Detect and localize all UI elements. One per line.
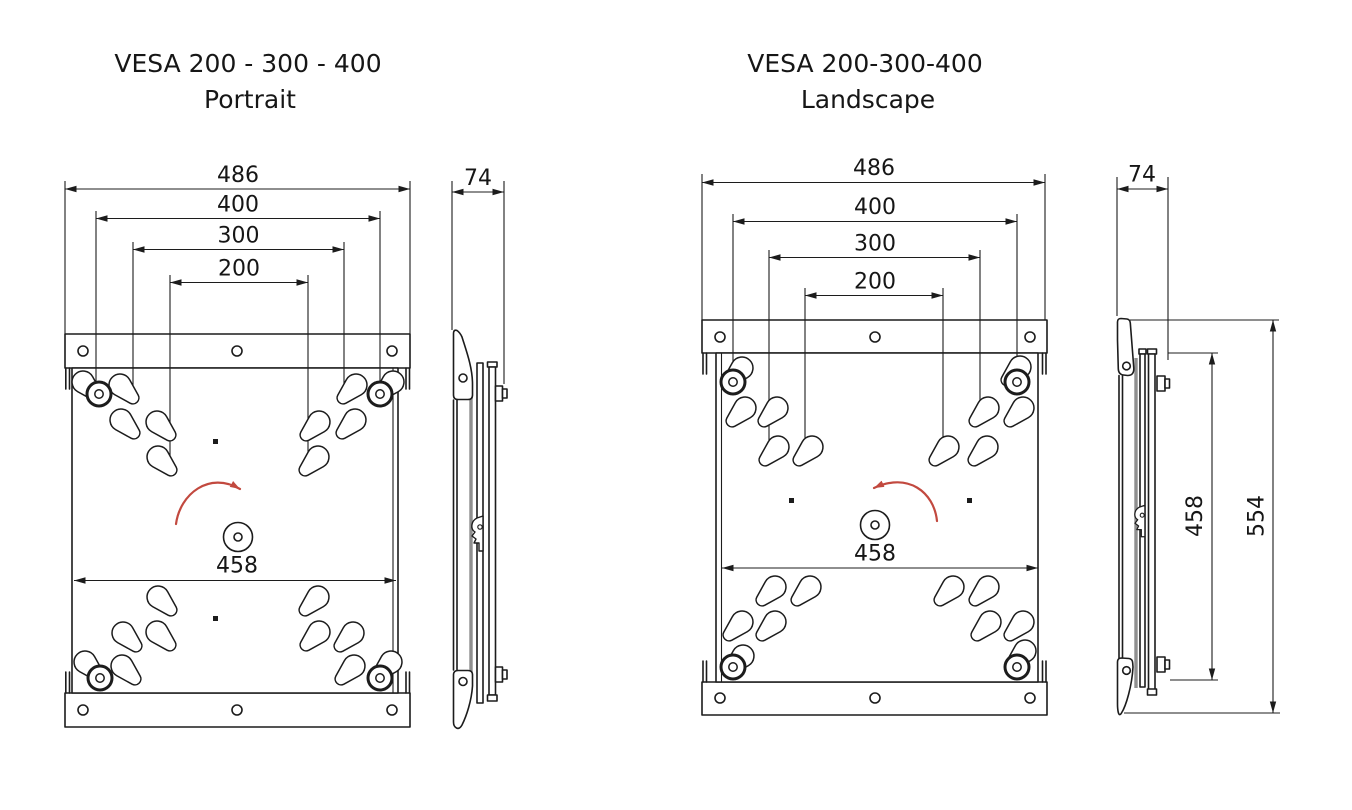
landscape-front-view: 486 400 300 200 458 (702, 156, 1047, 715)
hook-plate-edges (1119, 376, 1123, 659)
portrait-side-view: 74 (452, 166, 507, 728)
stud (1157, 657, 1165, 672)
index-mark (213, 616, 218, 621)
corner-screw (1005, 370, 1029, 394)
technical-drawing-page: VESA 200 - 300 - 400 Portrait (0, 0, 1352, 810)
corner-screw (368, 382, 392, 406)
corner-screw (87, 382, 111, 406)
landscape-dim-458-height: 458 (1183, 495, 1208, 537)
bottom-rail (702, 682, 1047, 715)
top-hook (1118, 319, 1134, 376)
portrait-dim-74: 74 (464, 166, 492, 191)
bottom-hook (454, 671, 473, 729)
index-mark (967, 498, 972, 503)
portrait-dim-300: 300 (218, 224, 260, 249)
portrait-figure: VESA 200 - 300 - 400 Portrait (65, 49, 507, 728)
side-plate (1149, 354, 1156, 691)
portrait-dim-486: 486 (217, 163, 259, 188)
hook-plate-edges (454, 400, 458, 670)
landscape-dim-458-width: 458 (854, 542, 896, 567)
landscape-dim-486: 486 (853, 156, 895, 181)
landscape-dim-74: 74 (1128, 163, 1156, 188)
landscape-title-line1: VESA 200-300-400 (747, 49, 982, 78)
portrait-dim-400: 400 (217, 193, 259, 218)
stud (496, 386, 503, 401)
corner-screw (1005, 655, 1029, 679)
top-hook (454, 330, 473, 399)
side-plate (489, 367, 496, 695)
landscape-dim-200: 200 (854, 270, 896, 295)
landscape-dim-400: 400 (854, 195, 896, 220)
index-mark (789, 498, 794, 503)
vesa-bracket-drawing: VESA 200 - 300 - 400 Portrait (0, 0, 1352, 810)
plate-cap (488, 695, 498, 701)
stud-tip (503, 670, 508, 679)
corner-screw (88, 666, 112, 690)
portrait-dim-200: 200 (218, 257, 260, 282)
stud (1157, 376, 1165, 391)
corner-screw (721, 655, 745, 679)
landscape-figure: VESA 200-300-400 Landscape (702, 49, 1280, 715)
stud-tip (1165, 379, 1170, 388)
stud (496, 667, 503, 682)
corner-screw (721, 370, 745, 394)
landscape-dim-300: 300 (854, 232, 896, 257)
top-rail (65, 334, 410, 368)
height-dimensions: 458 554 (1124, 320, 1280, 713)
stud-tip (1165, 660, 1170, 669)
landscape-title-line2: Landscape (801, 85, 935, 114)
landscape-dim-554: 554 (1245, 495, 1270, 537)
corner-screw (368, 666, 392, 690)
portrait-front-view: 486 400 300 200 458 (65, 163, 410, 727)
portrait-dim-458: 458 (216, 554, 258, 579)
landscape-side-view: 74 458 (1117, 163, 1280, 715)
top-rail (702, 320, 1047, 353)
stud-tip (503, 389, 508, 398)
portrait-title-line1: VESA 200 - 300 - 400 (114, 49, 381, 78)
bottom-rail (65, 693, 410, 727)
portrait-title-line2: Portrait (204, 85, 296, 114)
index-mark (213, 439, 218, 444)
plate-cap (1148, 689, 1157, 695)
